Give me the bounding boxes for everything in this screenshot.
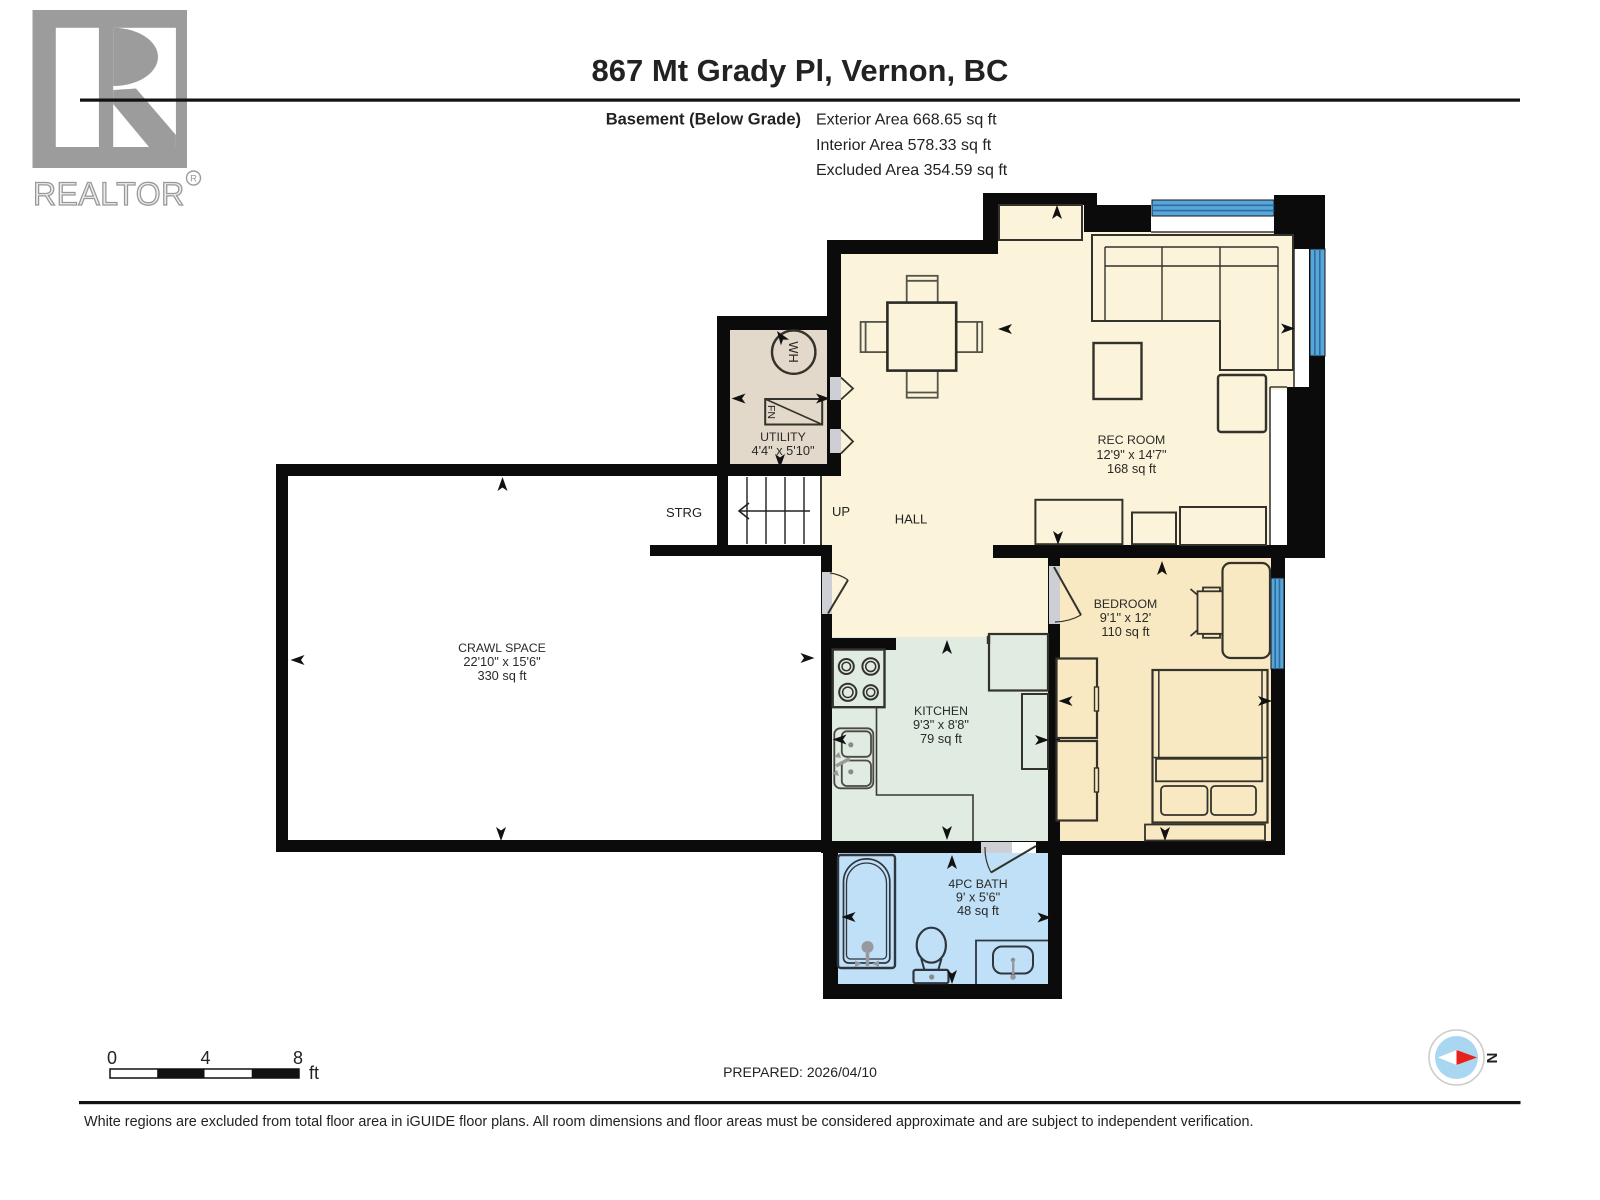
svg-text:HALL: HALL: [895, 512, 928, 527]
svg-text:R: R: [190, 174, 197, 185]
svg-text:867 Mt Grady Pl, Vernon, BC: 867 Mt Grady Pl, Vernon, BC: [592, 53, 1009, 88]
svg-text:4: 4: [200, 1048, 210, 1068]
svg-text:PREPARED: 2026/04/10: PREPARED: 2026/04/10: [723, 1064, 877, 1080]
svg-text:110 sq ft: 110 sq ft: [1101, 624, 1150, 639]
svg-text:WH: WH: [786, 341, 801, 362]
svg-text:REC ROOM: REC ROOM: [1098, 433, 1166, 447]
svg-text:UP: UP: [832, 504, 850, 519]
svg-text:12'9" x 14'7": 12'9" x 14'7": [1096, 447, 1166, 462]
svg-text:White regions are excluded fro: White regions are excluded from total fl…: [84, 1114, 1253, 1130]
svg-text:STRG: STRG: [666, 505, 702, 520]
svg-text:Interior Area 578.33 sq ft: Interior Area 578.33 sq ft: [816, 137, 992, 154]
svg-text:22'10" x 15'6": 22'10" x 15'6": [463, 654, 540, 669]
svg-text:48 sq ft: 48 sq ft: [957, 903, 999, 918]
svg-text:79 sq ft: 79 sq ft: [920, 731, 962, 746]
svg-text:UTILITY: UTILITY: [760, 430, 806, 444]
svg-text:Exterior Area 668.65 sq ft: Exterior Area 668.65 sq ft: [816, 112, 997, 129]
svg-text:330 sq ft: 330 sq ft: [477, 668, 527, 683]
svg-text:REALTOR: REALTOR: [33, 176, 185, 212]
svg-text:8: 8: [293, 1048, 303, 1068]
svg-text:ft: ft: [309, 1063, 319, 1083]
svg-text:KITCHEN: KITCHEN: [914, 704, 968, 718]
svg-text:FN: FN: [765, 405, 777, 419]
svg-text:Excluded Area 354.59 sq ft: Excluded Area 354.59 sq ft: [816, 162, 1008, 179]
svg-text:BEDROOM: BEDROOM: [1094, 597, 1158, 611]
svg-text:168 sq ft: 168 sq ft: [1107, 461, 1157, 476]
svg-text:N: N: [1483, 1053, 1500, 1064]
svg-text:Basement (Below Grade): Basement (Below Grade): [606, 111, 801, 129]
svg-text:0: 0: [107, 1048, 117, 1068]
svg-text:9'3" x 8'8": 9'3" x 8'8": [913, 717, 969, 732]
svg-text:CRAWL SPACE: CRAWL SPACE: [458, 641, 546, 655]
svg-text:9'1" x 12': 9'1" x 12': [1100, 610, 1151, 625]
